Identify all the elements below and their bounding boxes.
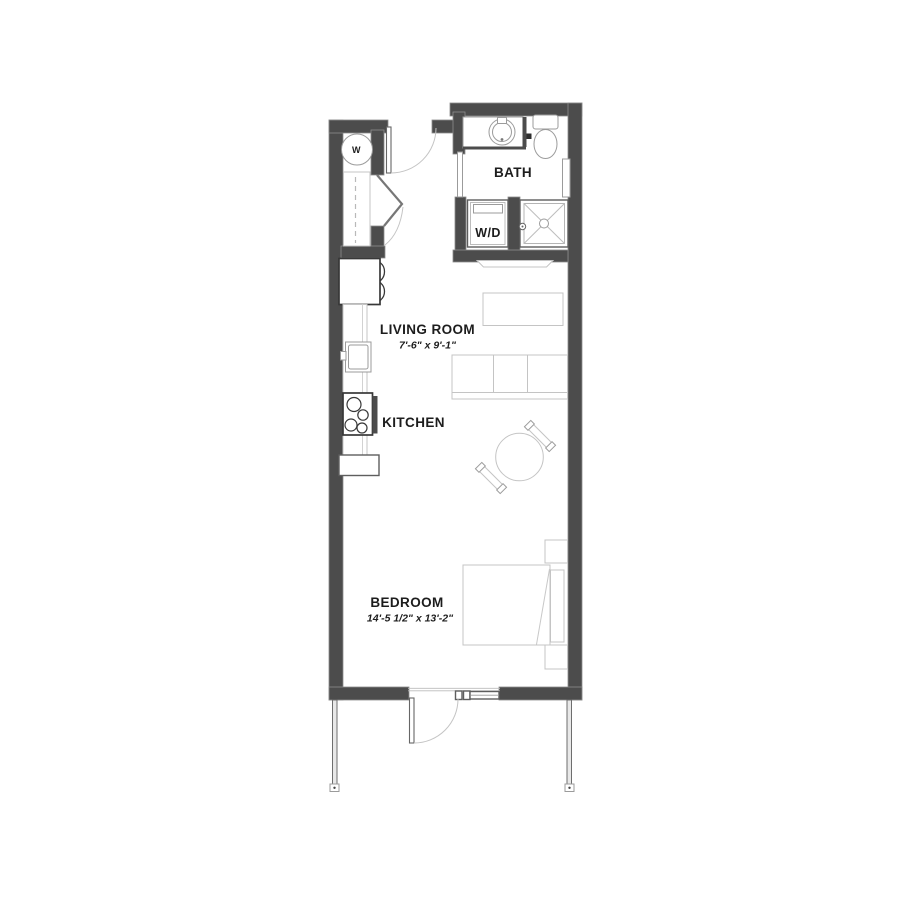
bedroom-label: BEDROOM [370, 595, 443, 610]
closet-bottom-wall [341, 246, 385, 258]
toilet-tank [533, 115, 558, 129]
entry-area: W [342, 127, 437, 246]
bath-sink-drain [501, 138, 504, 141]
vanity-front-edge [463, 147, 526, 150]
bath-top-wall [450, 103, 582, 116]
living-room: LIVING ROOM 7'-6" x 9'-1" [380, 261, 568, 494]
headboard [551, 570, 565, 642]
patio-door-leaf [410, 698, 415, 743]
coffee-table [483, 293, 563, 326]
bottom-wall-right [499, 687, 582, 700]
living-room-dimensions: 7'-6" x 9'-1" [399, 340, 457, 352]
burner-1 [347, 398, 361, 412]
nightstand-bottom [545, 645, 568, 669]
bath-pocket-door [458, 152, 463, 197]
bath-label: BATH [494, 165, 532, 180]
entry-door-swing-arc [391, 128, 436, 173]
refrigerator [339, 259, 380, 305]
floor-plan-drawing: W BATH W/D [0, 0, 900, 900]
shower-head-dot [522, 226, 524, 228]
kitchen-label: KITCHEN [382, 415, 445, 430]
burner-2 [358, 410, 368, 420]
entry-door-leaf [387, 127, 392, 173]
kitchen-faucet [341, 352, 347, 361]
laundry-label: W/D [475, 226, 501, 240]
bed-mattress [463, 565, 550, 645]
washer-dryer-control-panel [474, 205, 503, 214]
living-room-label: LIVING ROOM [380, 322, 475, 337]
door-threshold-block-2 [464, 691, 471, 700]
nightstand-top [545, 540, 568, 563]
tv [477, 261, 553, 268]
closet [344, 172, 371, 246]
laundry: W/D [468, 200, 509, 247]
bath-left-wall-lower [455, 197, 466, 257]
base-cabinet [339, 455, 379, 476]
left-wall [329, 120, 343, 700]
patio-rail-right-post-dot [568, 787, 570, 789]
patio-rail-left [333, 700, 338, 785]
bath-faucet [498, 118, 507, 124]
bedroom-dimensions: 14'-5 1/2" x 13'-2" [367, 613, 454, 625]
bathroom: BATH [458, 115, 571, 197]
laundry-shower-divider-wall [508, 197, 520, 257]
burner-4 [357, 423, 367, 433]
oven-handle [373, 396, 378, 434]
patio-door-swing-arc [414, 699, 458, 743]
toilet-paper-holder [527, 134, 532, 140]
door-threshold-block-1 [456, 691, 463, 700]
vanity-side-panel [523, 117, 527, 147]
bottom-wall-left [329, 687, 409, 700]
dining-table [496, 433, 544, 481]
shower [519, 200, 568, 247]
burner-3 [345, 419, 357, 431]
toilet-bowl [534, 130, 557, 159]
floor-plan: W BATH W/D [0, 0, 900, 900]
bedroom: BEDROOM 14'-5 1/2" x 13'-2" [367, 540, 568, 669]
water-heater-label: W [352, 145, 361, 155]
closet-stub-lower [371, 226, 384, 248]
shower-drain [540, 219, 549, 228]
closet-stub-upper [371, 130, 384, 175]
wall-niche [563, 159, 571, 197]
patio-rail-left-post-dot [333, 787, 335, 789]
closet-bifold-door [377, 175, 402, 226]
patio-rail-right [567, 700, 572, 785]
patio [330, 688, 574, 791]
kitchen-sink-basin [349, 345, 369, 369]
kitchen: KITCHEN [339, 259, 445, 476]
